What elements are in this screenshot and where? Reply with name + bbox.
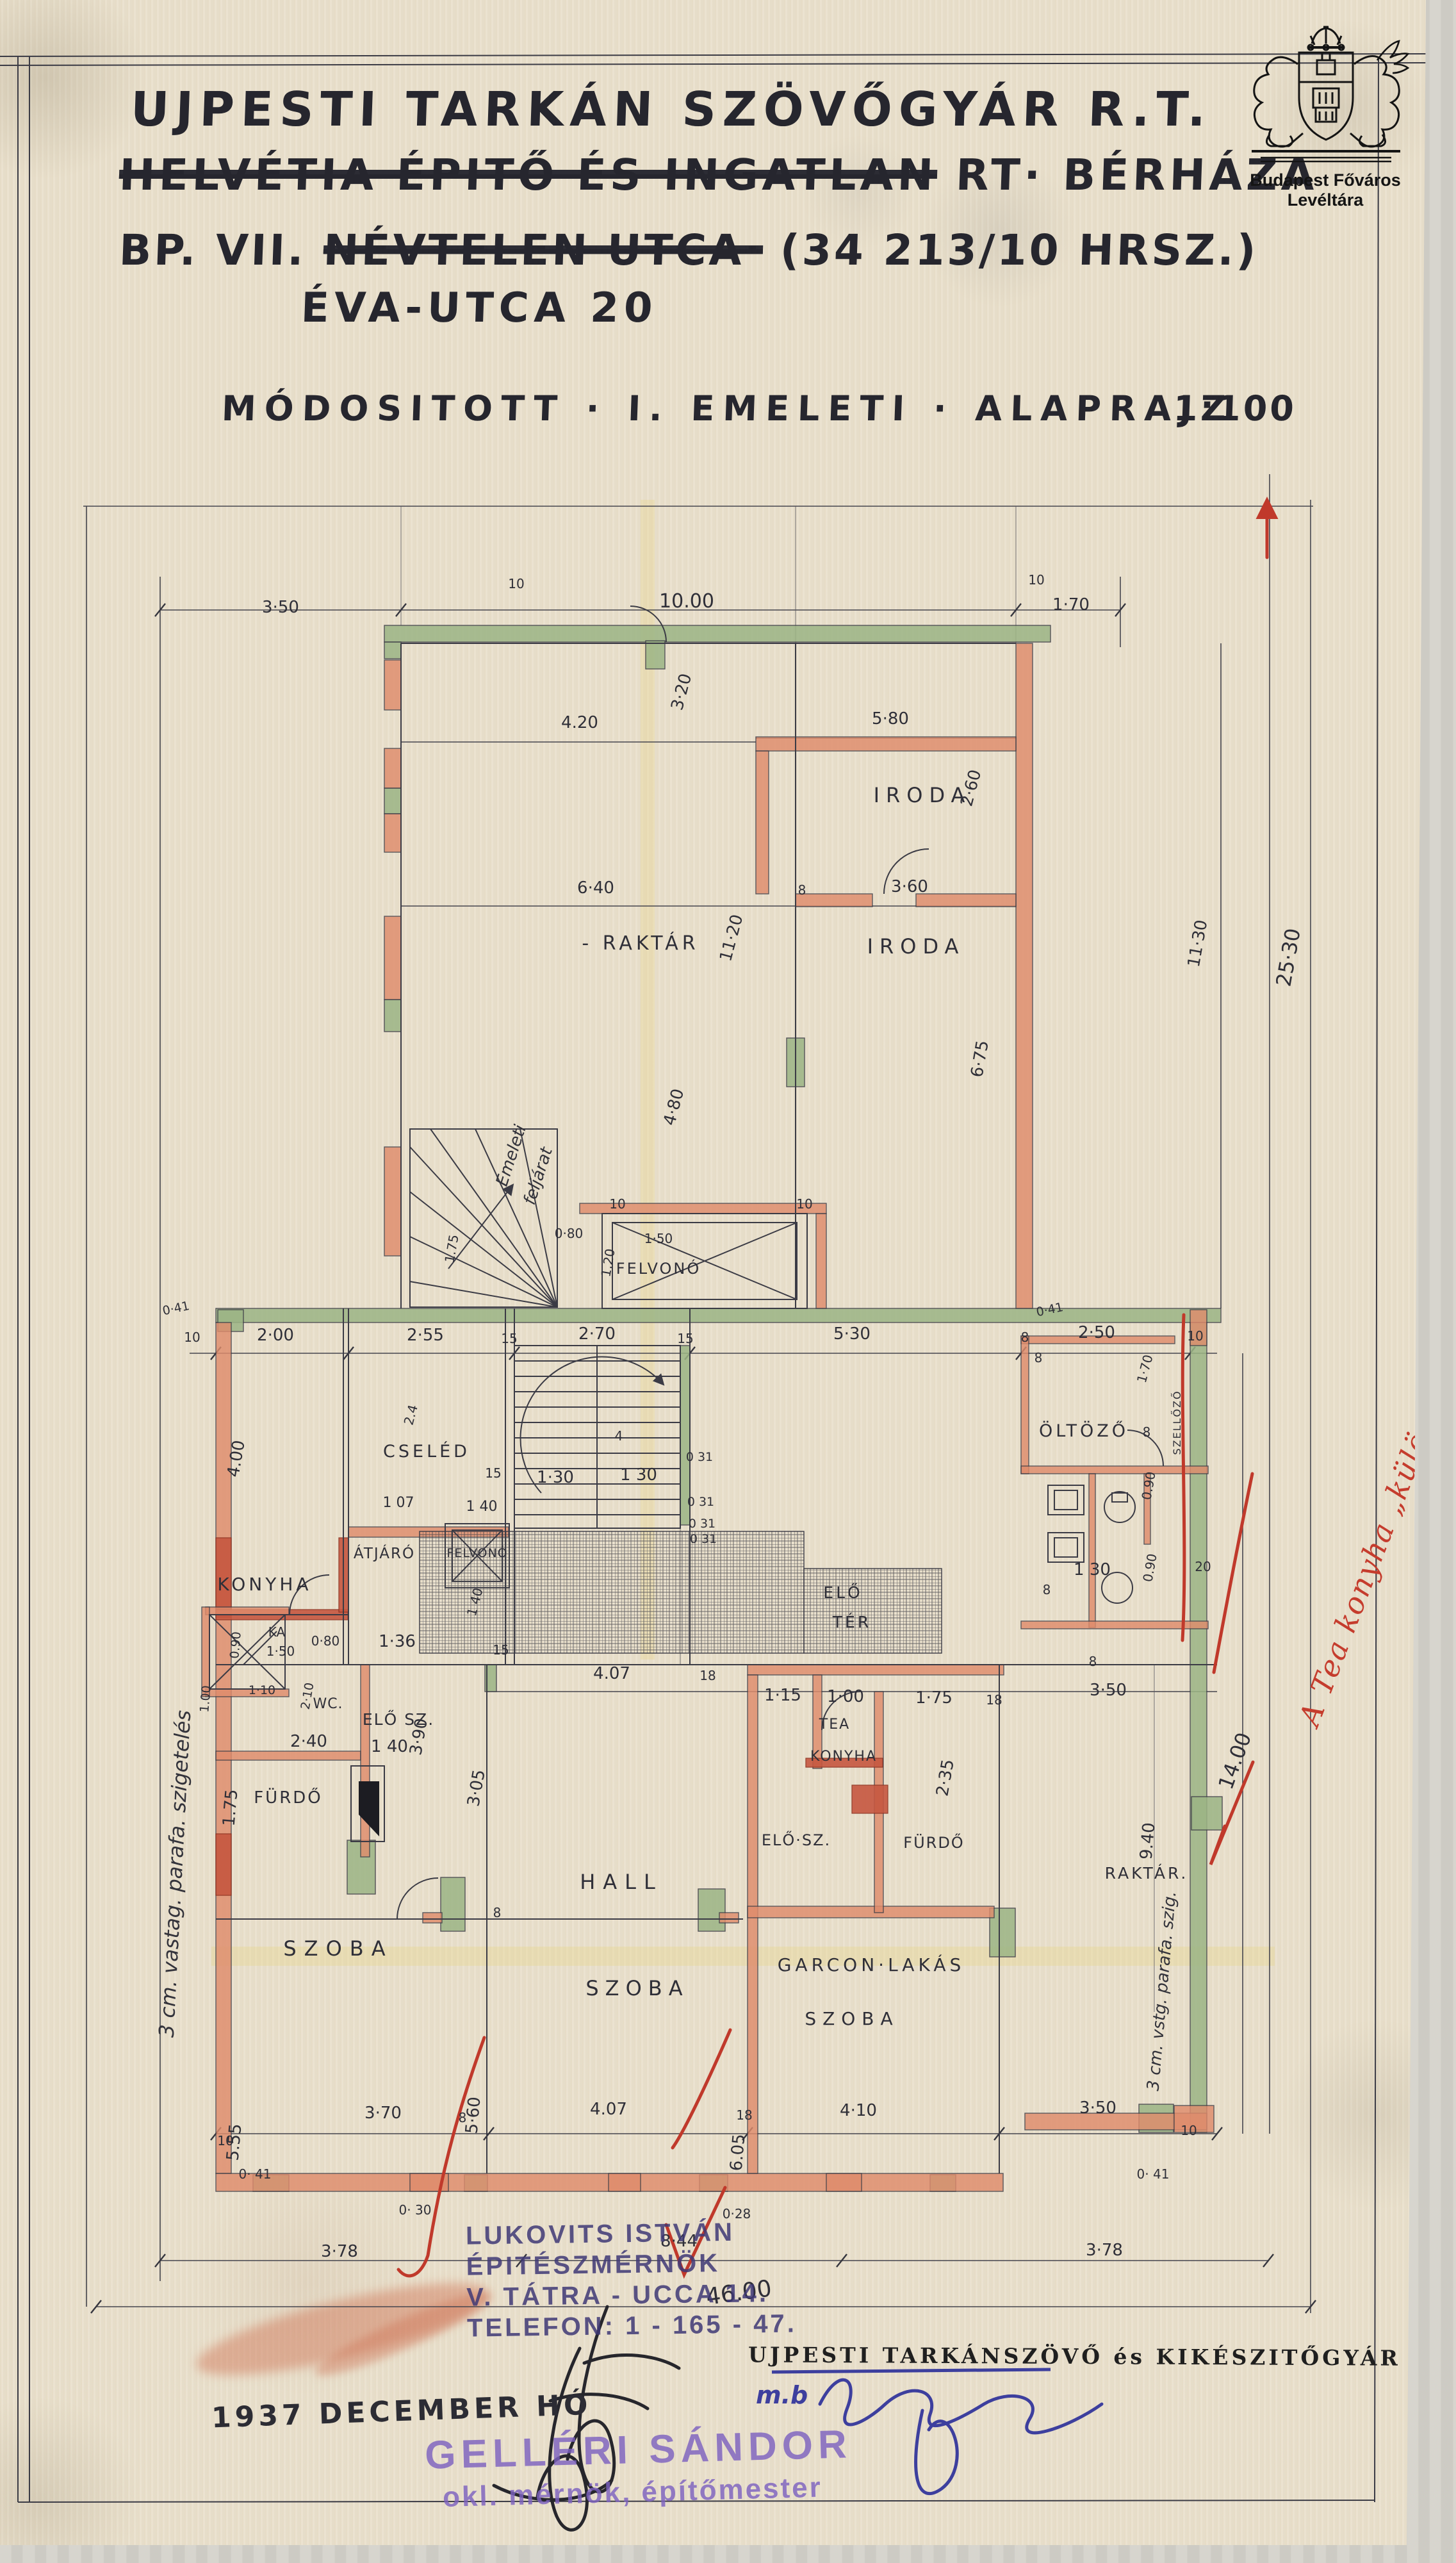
- dim-label: 4.20: [561, 713, 598, 732]
- room-label: TEA: [819, 1717, 850, 1733]
- dim-label: 0 31: [687, 1495, 714, 1509]
- dim-label: 4.07: [593, 1664, 630, 1683]
- room-label: TÉR: [832, 1613, 871, 1631]
- dim-label: 15: [485, 1465, 501, 1481]
- dim-label: 8: [798, 882, 806, 898]
- dim-label: 8: [459, 2110, 467, 2125]
- architect-phone: TELEFON: 1 - 165 - 47.: [467, 2308, 797, 2343]
- dim-label: 3·50: [1079, 2098, 1117, 2118]
- archive-caption-text: Budapest Főváros Levéltára: [1250, 170, 1401, 210]
- crossed-owner-line: HELVÉTIA ÉPITŐ ÉS INGATLAN RT· BÉRHÁZA: [119, 150, 1320, 200]
- dim-label: 0 31: [690, 1532, 717, 1546]
- room-label: FELVONÓ: [446, 1545, 507, 1560]
- dim-label: 2·35: [933, 1758, 958, 1798]
- drawing-scale: 1:100: [1173, 388, 1297, 429]
- dim-label: 8: [1021, 1330, 1029, 1345]
- dim-label: 10.00: [659, 590, 714, 613]
- room-label: - RAKTÁR: [582, 932, 699, 955]
- room-label: KONYHA: [217, 1574, 311, 1595]
- dim-label: 6·75: [967, 1039, 993, 1079]
- dim-label: 4·80: [660, 1087, 688, 1128]
- struck-owner-text: HELVÉTIA ÉPITŐ ÉS INGATLAN: [119, 150, 938, 200]
- dim-label: 2·55: [407, 1326, 444, 1345]
- dim-label: 10: [217, 2133, 233, 2148]
- archive-coat-of-arms: [1230, 26, 1422, 173]
- room-label: KONYHA: [810, 1749, 877, 1765]
- dim-label: 1 40: [371, 1737, 408, 1756]
- dim-label: 4·10: [840, 2101, 877, 2120]
- owner-title: UJPESTI TARKÁN SZÖVŐGYÁR R.T.: [129, 82, 1213, 137]
- architect-title: ÉPITÉSZMÉRNÖK: [466, 2246, 796, 2282]
- dim-label: 1·50: [266, 1644, 295, 1659]
- dim-label: 10: [184, 1330, 200, 1345]
- company-stamp: UJPESTI TARKÁNSZÖVŐ és KIKÉSZITŐGYÁR: [748, 2342, 1401, 2370]
- mb-initials: m.b: [756, 2381, 808, 2409]
- owner-title-text: UJPESTI TARKÁN SZÖVŐGYÁR R.T.: [129, 82, 1213, 137]
- floorplan-drawing: IRODAIRODA- RAKTÁRFELVONÓCSELÉDÁTJÁRÓFEL…: [0, 0, 1456, 2563]
- dim-label: 1.00: [197, 1685, 214, 1713]
- dim-label: 0.90: [1138, 1471, 1158, 1501]
- dim-label: 0.90: [1140, 1553, 1159, 1583]
- dim-label: 3·78: [1086, 2241, 1123, 2260]
- dim-label: 18: [986, 1692, 1002, 1708]
- room-label: WC.: [313, 1696, 343, 1712]
- architect-stamp: LUKOVITS ISTVÁN ÉPITÉSZMÉRNÖK V. TÁTRA -…: [466, 2216, 797, 2343]
- room-label: GARCON·LAKÁS: [778, 1954, 965, 1975]
- note-label: Emeleti: [493, 1122, 530, 1189]
- dim-label: 3·50: [1090, 1681, 1127, 1700]
- dimension-lines: [83, 474, 1316, 2313]
- dim-label: 15: [493, 1642, 509, 1658]
- dim-label: 10: [796, 1196, 812, 1212]
- drawing-title-text: MÓDOSITOTT · I. EMELETI · ALAPRAJZ: [221, 388, 1235, 429]
- dim-label: 15: [501, 1331, 517, 1346]
- dim-label: 0.90: [227, 1631, 244, 1659]
- dim-label: 18: [736, 2107, 752, 2123]
- drawing-title: MÓDOSITOTT · I. EMELETI · ALAPRAJZ: [221, 388, 1235, 429]
- dim-label: 1 40: [466, 1499, 498, 1515]
- dim-label: 1·30: [537, 1468, 574, 1487]
- dim-label: 9.40: [1137, 1822, 1159, 1860]
- dim-label: 1·00: [827, 1687, 864, 1706]
- dim-label: 0·80: [555, 1226, 584, 1241]
- dim-label: 0 31: [689, 1517, 716, 1531]
- room-label: FÜRDŐ: [254, 1787, 323, 1808]
- dim-label: 2·40: [290, 1732, 327, 1751]
- dim-label: 11·30: [1184, 918, 1211, 969]
- dim-label: 5·80: [872, 709, 909, 729]
- dim-label: 18: [699, 1668, 716, 1683]
- dim-label: 6·40: [577, 878, 614, 898]
- builder-stamp: GELLÉRI SÁNDOR okl. mérnök, építőmester: [424, 2421, 853, 2514]
- struck-street-text: NÉVTELEN UTCA·: [323, 226, 764, 275]
- street-line: ÉVA-UTCA 20: [300, 284, 658, 332]
- dim-label: 3·05: [464, 1768, 489, 1808]
- dim-label: 0· 41: [1137, 2166, 1170, 2182]
- dim-label: 8: [1143, 1424, 1151, 1440]
- dim-label: 0· 41: [239, 2166, 272, 2182]
- dim-label: 1 30: [620, 1465, 657, 1485]
- room-label: ÖLTÖZŐ: [1039, 1421, 1129, 1441]
- dim-label: 3·50: [262, 598, 299, 617]
- dim-label: 8: [1043, 1582, 1051, 1597]
- blueprint-paper: IRODAIRODA- RAKTÁRFELVONÓCSELÉDÁTJÁRÓFEL…: [0, 0, 1456, 2545]
- dim-label: 0 31: [686, 1450, 713, 1464]
- company-stamp-text: UJPESTI TARKÁNSZÖVŐ és KIKÉSZITŐGYÁR: [748, 2342, 1401, 2370]
- dim-label: 2·50: [1078, 1323, 1115, 1342]
- dim-label: 3·70: [364, 2104, 402, 2123]
- architect-address: V. TÁTRA - UCCA 14.: [466, 2277, 796, 2312]
- dim-label: 10: [1181, 2123, 1197, 2138]
- dim-label: 1·15: [764, 1686, 801, 1705]
- dim-label: 1·70: [1134, 1353, 1156, 1385]
- dim-label: 10: [609, 1196, 625, 1212]
- dim-label: 2.4: [401, 1403, 421, 1427]
- dim-label: 3·20: [667, 672, 696, 713]
- scale-text: 1:100: [1173, 388, 1297, 429]
- dimension-labels: 3·5010.001·7010104.203·205·802·606·4083·…: [161, 572, 1305, 2311]
- archive-caption: Budapest Főváros Levéltára: [1226, 170, 1425, 210]
- room-label: IRODA: [867, 934, 965, 959]
- dim-label: 15: [677, 1331, 693, 1346]
- dim-label: 0·80: [311, 1633, 340, 1649]
- dim-label: 0·41: [161, 1299, 191, 1318]
- dim-label: 8: [1035, 1350, 1043, 1365]
- street-text: ÉVA-UTCA 20: [300, 284, 658, 332]
- room-label: FÜRDŐ: [903, 1833, 964, 1852]
- dim-label: 2·70: [578, 1324, 616, 1344]
- main-staircase: [514, 1346, 680, 1528]
- dim-label: 0· 30: [399, 2202, 432, 2218]
- dim-label: 10: [1187, 1328, 1203, 1344]
- dim-label: 25·30: [1272, 927, 1305, 989]
- scanned-archival-floorplan: { "archive": { "caption": "Budapest Fővá…: [0, 0, 1456, 2563]
- room-label: ÁTJÁRÓ: [354, 1544, 415, 1562]
- room-label: SZOBA: [805, 2008, 899, 2029]
- room-label: HALL: [580, 1870, 663, 1894]
- dim-label: 3·78: [321, 2242, 358, 2261]
- dim-label: 2·00: [257, 1326, 294, 1345]
- dim-label: 1·36: [379, 1632, 416, 1651]
- dim-label: 1·10: [249, 1683, 275, 1697]
- note-label: 3 cm. vstg. parafa. szig.: [1143, 1890, 1180, 2091]
- dim-label: 8: [493, 1905, 502, 1920]
- dim-label: 1.20: [598, 1248, 618, 1278]
- dim-label: 10: [508, 576, 524, 591]
- dim-label: 1.75: [220, 1788, 242, 1827]
- dim-label: 8: [1089, 1654, 1097, 1669]
- dim-label: 14.00: [1213, 1729, 1256, 1793]
- dim-label: 1·70: [1052, 595, 1090, 614]
- architect-name: LUKOVITS ISTVÁN: [466, 2216, 796, 2251]
- room-label: SZOBA: [585, 1976, 689, 2000]
- note-label: SZELLŐZŐ: [1170, 1390, 1183, 1455]
- address-prefix: BP. VII.: [119, 226, 325, 275]
- dim-label: 10: [1028, 572, 1044, 588]
- room-label: ELŐ: [823, 1583, 862, 1602]
- room-label: RAKTÁR.: [1105, 1864, 1189, 1883]
- room-label: SZOBA: [283, 1936, 393, 1961]
- room-label: FELVONÓ: [616, 1258, 701, 1278]
- dim-label: 11·20: [716, 912, 747, 964]
- dim-label: 2·60: [957, 768, 985, 809]
- dim-label: 20: [1195, 1559, 1211, 1574]
- dim-label: 1·75: [915, 1688, 953, 1708]
- room-label: ELŐ·SZ.: [762, 1830, 831, 1849]
- room-label: CSELÉD: [383, 1441, 470, 1462]
- parcel-number: (34 213/10 HRSZ.): [762, 226, 1259, 275]
- mb-text: m.b: [756, 2381, 808, 2409]
- dim-label: 1 07: [383, 1495, 414, 1511]
- dim-label: 1 30: [1074, 1560, 1111, 1579]
- dim-label: 4.07: [590, 2100, 627, 2119]
- dim-label: 3·60: [891, 877, 928, 896]
- address-line: BP. VII. NÉVTELEN UTCA· (34 213/10 HRSZ.…: [119, 226, 1259, 275]
- dim-label: 1·50: [644, 1231, 673, 1246]
- dim-label: KA: [268, 1624, 286, 1640]
- dim-label: 6.05: [727, 2133, 749, 2172]
- dim-label: 4: [615, 1428, 623, 1444]
- dim-label: 5·30: [833, 1324, 871, 1344]
